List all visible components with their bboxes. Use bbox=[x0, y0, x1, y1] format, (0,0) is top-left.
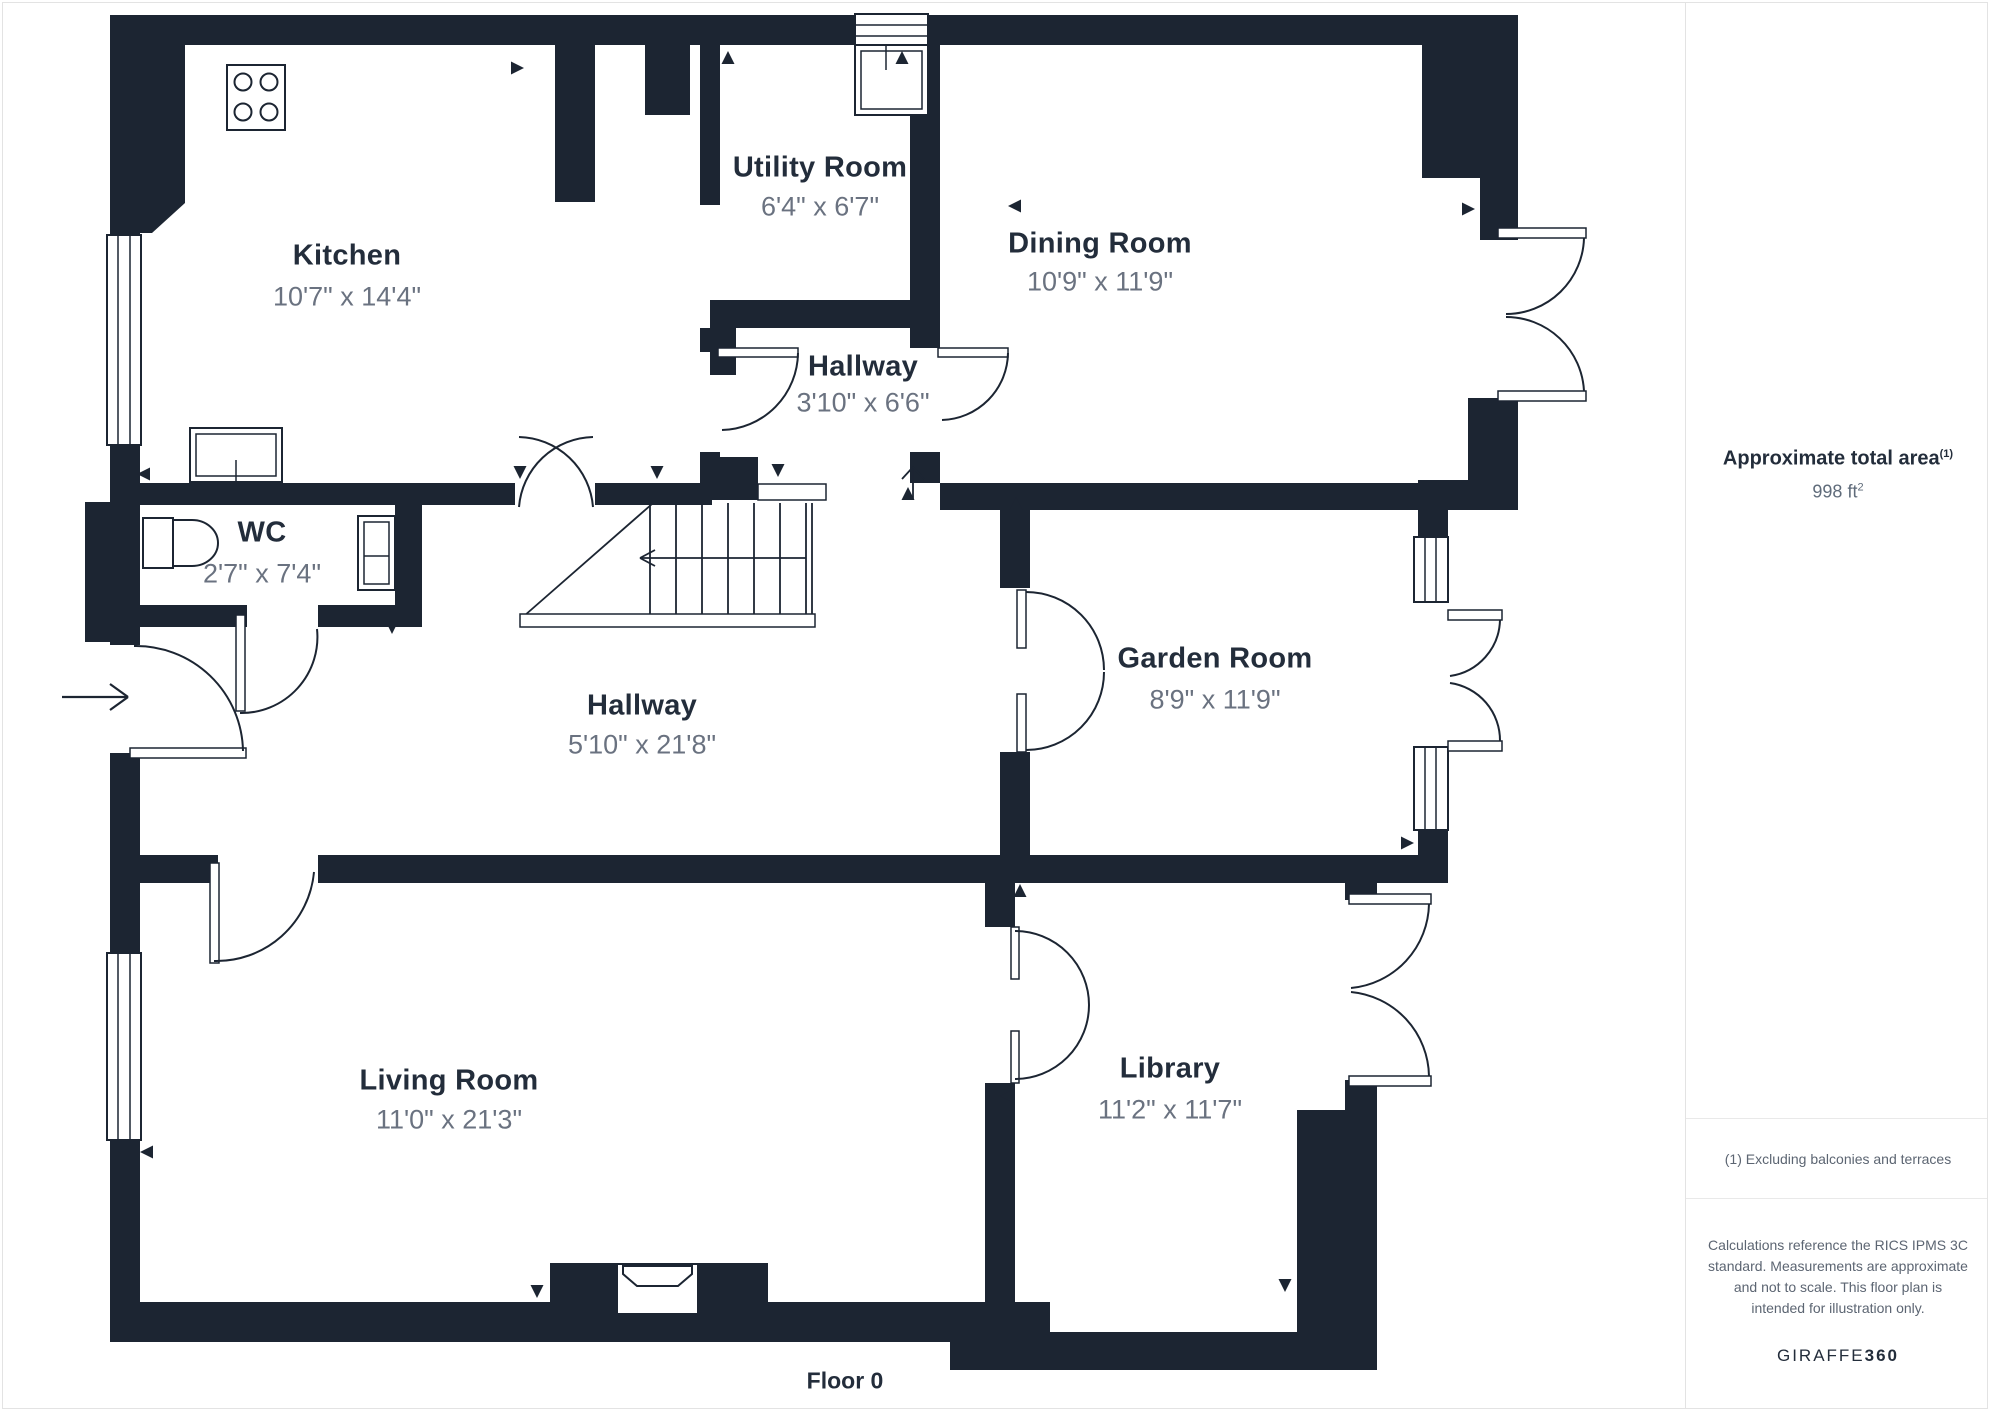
utility-sink-icon bbox=[855, 45, 928, 115]
wc-basin-icon bbox=[358, 516, 395, 590]
entrance-door-leaf bbox=[130, 748, 246, 758]
dining-door-leaf bbox=[938, 348, 1008, 357]
stove-icon bbox=[227, 65, 285, 130]
brand-logo-bold: 360 bbox=[1865, 1346, 1899, 1365]
total-area-value-superscript: 2 bbox=[1857, 482, 1863, 494]
room-dims-utility-room: 6'4" x 6'7" bbox=[761, 192, 879, 223]
total-area-title-text: Approximate total area bbox=[1723, 448, 1940, 470]
dining-french-leaf-lower bbox=[1498, 391, 1586, 401]
garden-door-leaf-lower bbox=[1017, 694, 1026, 752]
window-utility bbox=[855, 14, 928, 46]
room-dims-wc: 2'7" x 7'4" bbox=[203, 559, 321, 590]
room-name-living-room: Living Room bbox=[360, 1065, 539, 1098]
brand-logo: GIRAFFE360 bbox=[1777, 1346, 1899, 1366]
window-garden-upper bbox=[1414, 537, 1448, 602]
wc-door-leaf bbox=[236, 615, 245, 711]
room-dims-garden-room: 8'9" x 11'9" bbox=[1149, 685, 1280, 716]
brand-logo-regular: GIRAFFE bbox=[1777, 1346, 1865, 1365]
room-dims-hallway-main: 5'10" x 21'8" bbox=[568, 730, 716, 761]
room-name-utility-room: Utility Room bbox=[733, 152, 907, 185]
room-name-wc: WC bbox=[238, 517, 287, 550]
total-area-value-text: 998 ft bbox=[1812, 482, 1857, 502]
room-name-dining-room: Dining Room bbox=[1008, 228, 1192, 261]
library-door-leaf-lower bbox=[1011, 1031, 1019, 1083]
window-kitchen bbox=[107, 235, 141, 445]
room-name-hallway-top: Hallway bbox=[808, 351, 918, 384]
disclaimer: Calculations reference the RICS IPMS 3C … bbox=[1706, 1235, 1970, 1319]
room-name-kitchen: Kitchen bbox=[293, 240, 401, 273]
window-garden-lower bbox=[1414, 747, 1448, 830]
window-living-room bbox=[107, 953, 141, 1140]
total-area-value: 998 ft2 bbox=[1812, 482, 1863, 503]
room-dims-dining-room: 10'9" x 11'9" bbox=[1027, 267, 1173, 298]
sidebar-rule-bottom bbox=[1686, 1198, 1987, 1199]
room-dims-living-room: 11'0" x 21'3" bbox=[376, 1105, 522, 1136]
entrance-arrow-icon bbox=[62, 684, 128, 710]
room-name-garden-room: Garden Room bbox=[1117, 643, 1312, 676]
footnote: (1) Excluding balconies and terraces bbox=[1725, 1151, 1951, 1167]
living-door-leaf bbox=[210, 863, 219, 963]
total-area-title-superscript: (1) bbox=[1940, 448, 1953, 460]
library-french-leaf-upper bbox=[1349, 894, 1431, 904]
room-name-hallway-main: Hallway bbox=[587, 690, 697, 723]
fireplace bbox=[618, 1265, 697, 1313]
total-area-title: Approximate total area(1) bbox=[1723, 448, 1953, 471]
floor-label: Floor 0 bbox=[807, 1368, 884, 1395]
garden-french-leaf-upper bbox=[1448, 610, 1502, 620]
library-french-leaf-lower bbox=[1349, 1076, 1431, 1086]
hallway-kitchen-door-leaf bbox=[718, 348, 798, 357]
sidebar-rule-top bbox=[1686, 1118, 1987, 1119]
room-name-library: Library bbox=[1120, 1053, 1220, 1086]
stairs-threshold bbox=[758, 484, 826, 500]
garden-french-leaf-lower bbox=[1448, 741, 1502, 751]
dining-french-leaf-upper bbox=[1498, 228, 1586, 238]
garden-door-leaf-upper bbox=[1017, 590, 1026, 648]
kitchen-sink-icon bbox=[190, 428, 282, 482]
floorplan-page: Kitchen 10'7" x 14'4" Utility Room 6'4" … bbox=[0, 0, 2000, 1415]
library-door-leaf-upper bbox=[1011, 927, 1019, 979]
room-dims-hallway-top: 3'10" x 6'6" bbox=[796, 388, 929, 419]
room-dims-kitchen: 10'7" x 14'4" bbox=[273, 282, 421, 313]
room-dims-library: 11'2" x 11'7" bbox=[1098, 1095, 1242, 1126]
